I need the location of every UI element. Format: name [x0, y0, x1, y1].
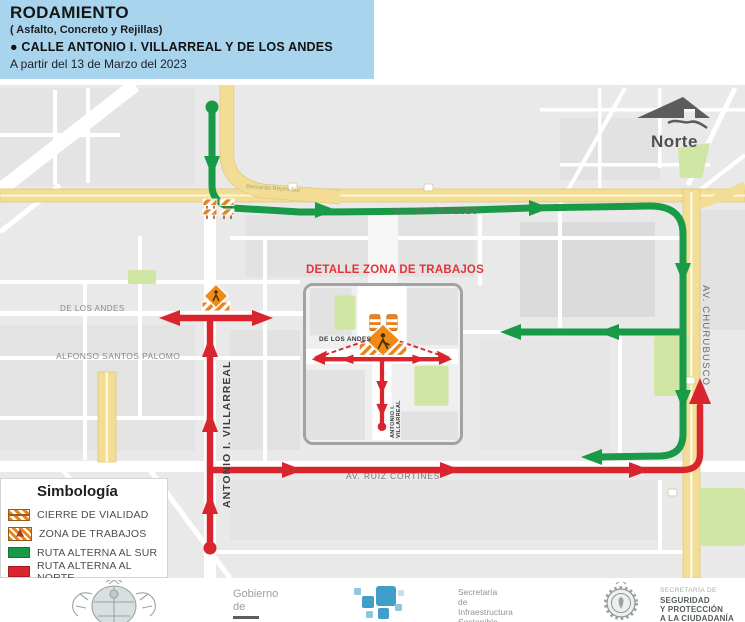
inset-street-label-villarreal: ANTONIO I. VILLARREAL: [390, 368, 402, 438]
roadwork-icon: [8, 527, 32, 541]
city-crest-icon: [62, 580, 167, 622]
page-title: RODAMIENTO: [10, 3, 374, 23]
green-swatch: [8, 547, 30, 558]
footer-gov-wordmark-stub: [233, 616, 259, 619]
infrastructure-logo-icon: [350, 584, 410, 622]
header-date-line: A partir del 13 de Marzo del 2023: [10, 57, 374, 71]
footer-security-line2: SEGURIDAD: [660, 596, 710, 605]
legend-label: CIERRE DE VIALIDAD: [37, 509, 149, 521]
footer-security-line4: A LA CIUDADANÍA: [660, 614, 734, 622]
header-street-line: ● CALLE ANTONIO I. VILLARREAL Y DE LOS A…: [10, 40, 374, 54]
legend-box: Simbología CIERRE DE VIALIDAD ZONA DE TR…: [0, 478, 168, 578]
street-label-churubusco: AV. CHURUBUSCO: [700, 285, 711, 385]
footer-gov-line2: de: [233, 602, 245, 613]
legend-item-closure: CIERRE DE VIALIDAD: [1, 505, 167, 524]
red-swatch: [8, 566, 30, 577]
inset-map: [306, 286, 458, 440]
barrier-icon: [8, 509, 30, 521]
street-label-los-angeles: AV. LOS ÁNGELES: [392, 206, 478, 216]
street-label-antonio-villarreal: ANTONIO I. VILLARREAL: [221, 330, 233, 508]
street-label-alfonso-santos-palomo: ALFONSO SANTOS PALOMO: [56, 351, 180, 361]
footer-security-line1: SECRETARÍA DE: [660, 587, 717, 595]
work-zone-detail-inset: DE LOS ANDES ANTONIO I. VILLARREAL: [303, 283, 463, 445]
legend-title: Simbología: [37, 483, 167, 500]
footer-security-line3: Y PROTECCIÓN: [660, 605, 723, 614]
footer-gov-line1: Gobierno: [233, 589, 278, 600]
inset-title: DETALLE ZONA DE TRABAJOS: [306, 264, 484, 276]
street-label-ruiz-cortines: AV. RUIZ CORTINES: [346, 471, 440, 481]
footer: Gobierno de Secretaría de Infraestructur…: [0, 578, 745, 622]
north-label: Norte: [651, 132, 698, 152]
street-label-de-los-andes: DE LOS ANDES: [60, 304, 125, 313]
header-subtitle: ( Asfalto, Concreto y Rejillas): [10, 24, 374, 36]
header-banner: RODAMIENTO ( Asfalto, Concreto y Rejilla…: [0, 0, 374, 79]
legend-item-workzone: ZONA DE TRABAJOS: [1, 524, 167, 543]
flyer-canvas: AV. LOS ÁNGELES DE LOS ANDES ALFONSO SAN…: [0, 0, 745, 622]
legend-label: RUTA ALTERNA AL SUR: [37, 547, 157, 559]
inset-street-label-de-los-andes: DE LOS ANDES: [319, 336, 371, 343]
security-badge-icon: [598, 582, 644, 622]
legend-label: ZONA DE TRABAJOS: [39, 528, 146, 540]
footer-infra-line4: Sostenible: [458, 618, 498, 622]
